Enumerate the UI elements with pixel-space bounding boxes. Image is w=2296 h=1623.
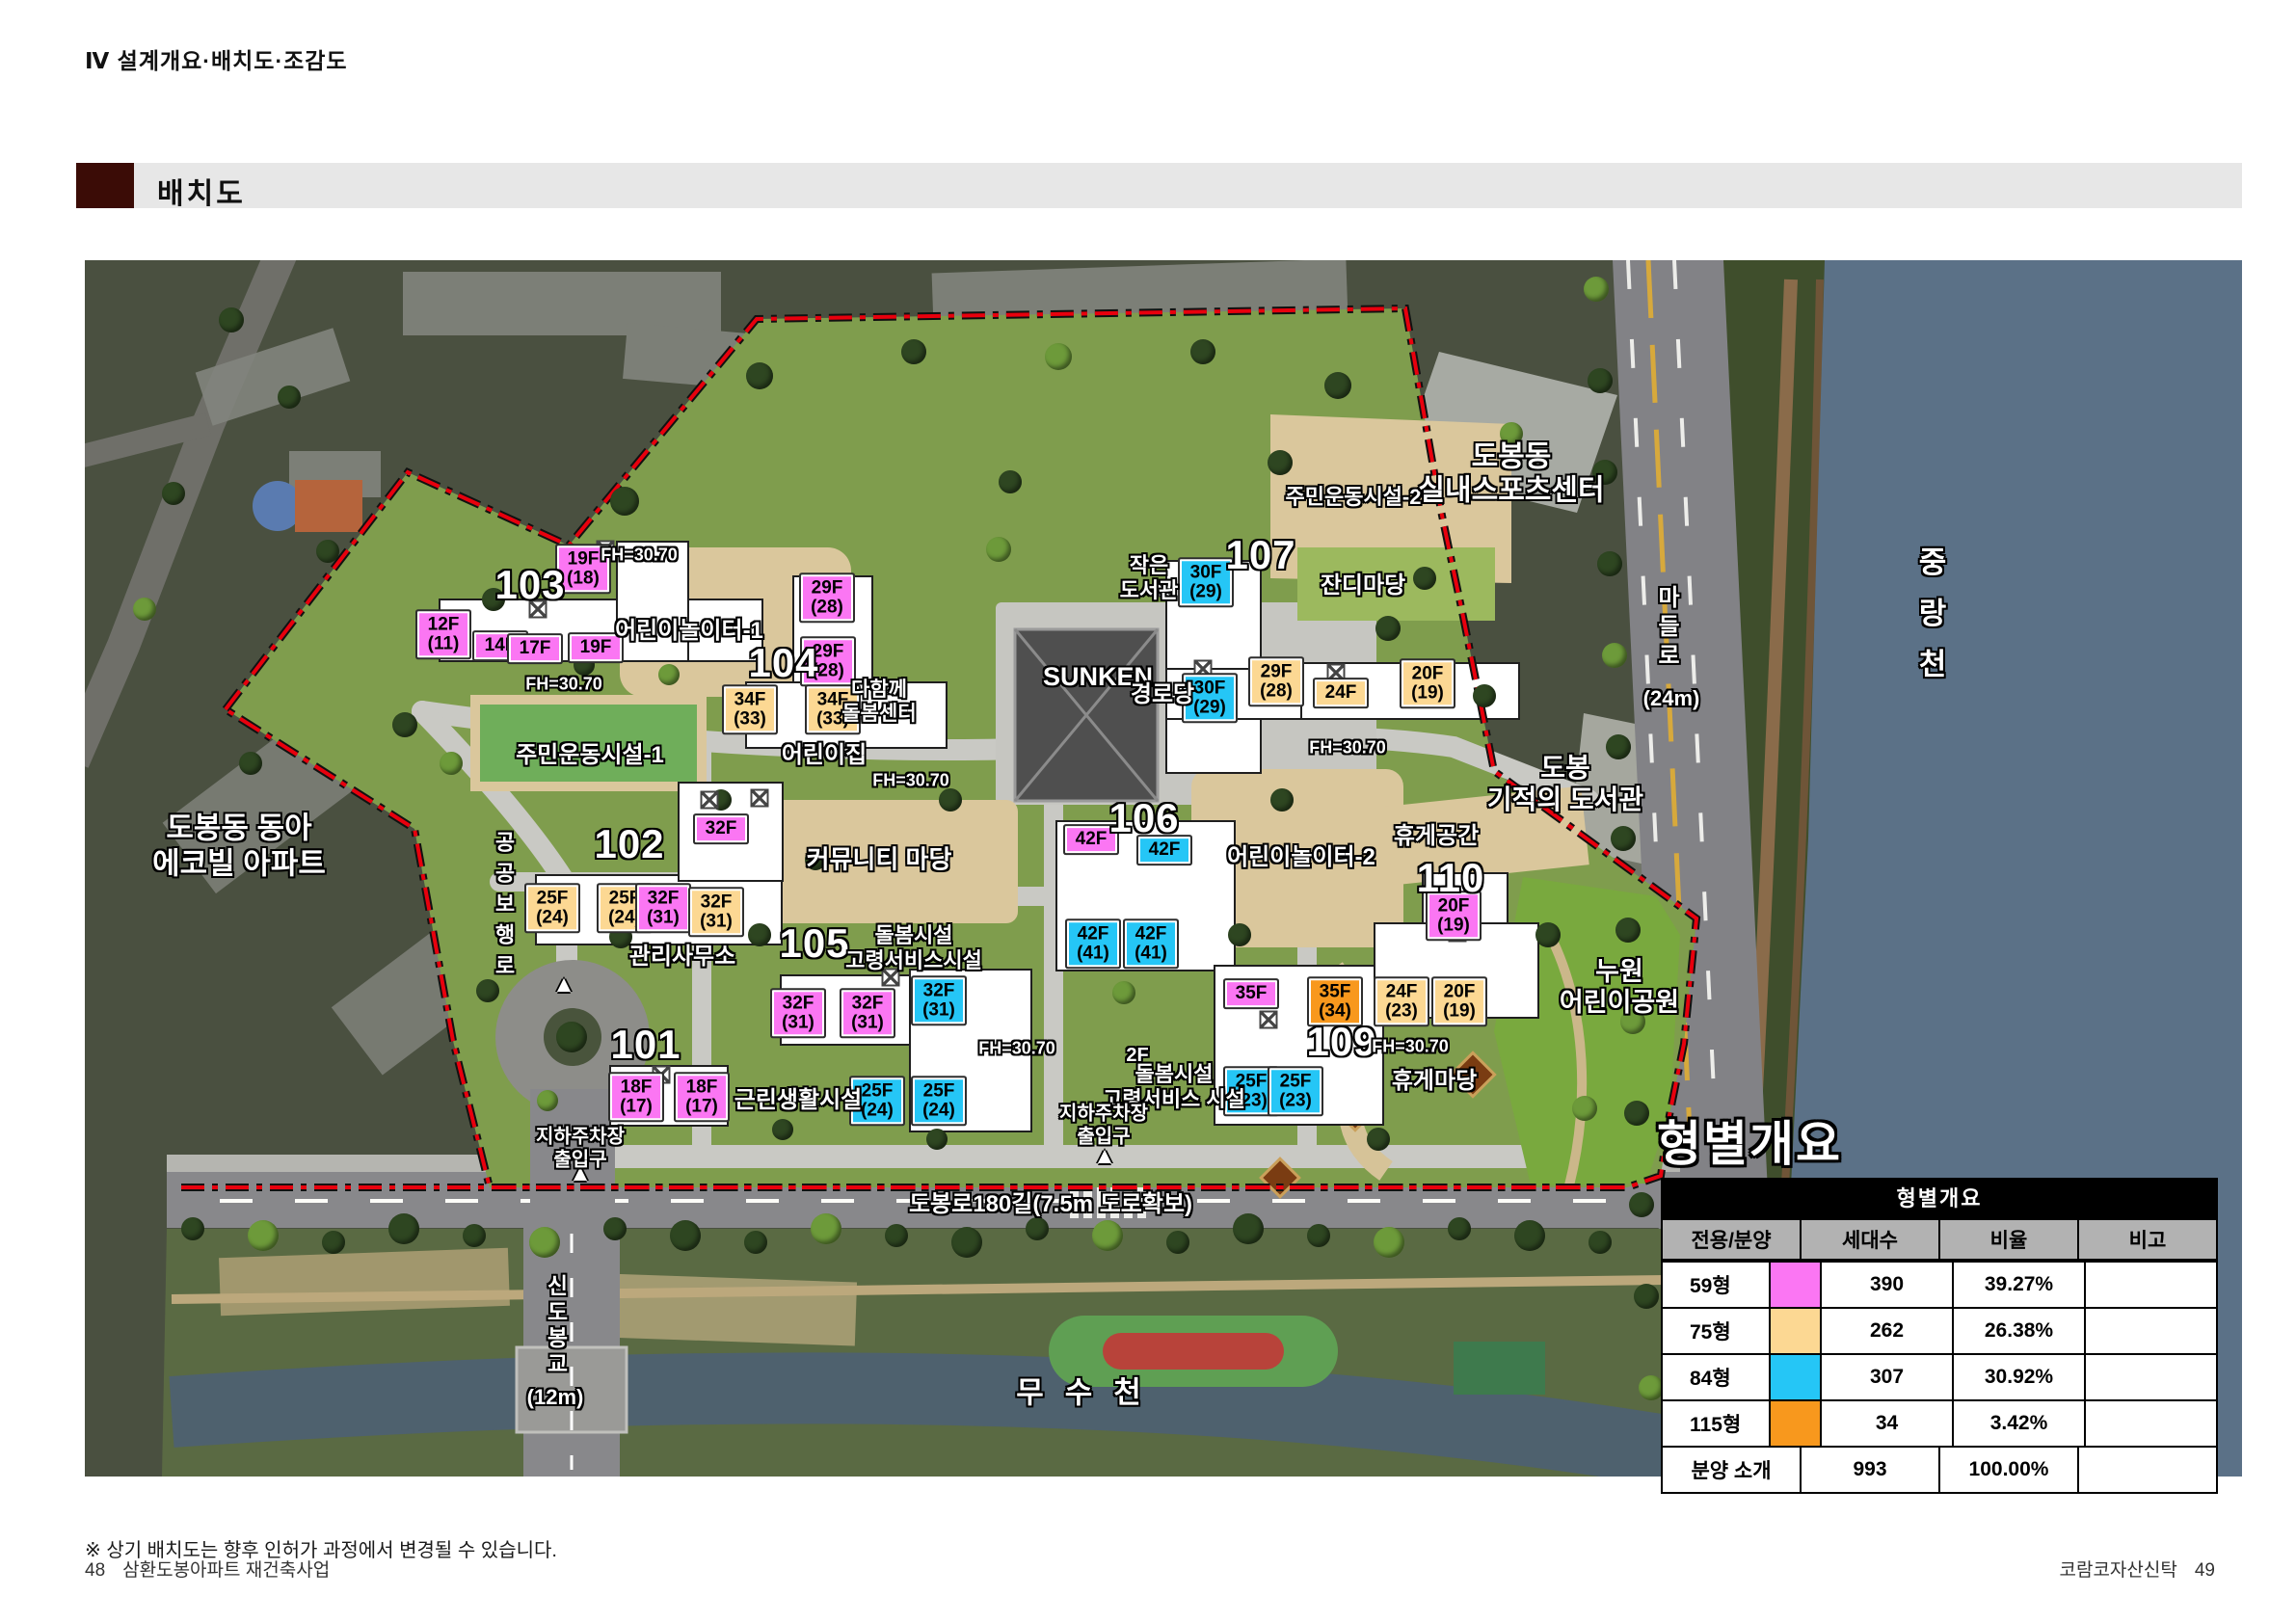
legend-color-swatch (1769, 1261, 1822, 1309)
legend-column-header: 세대수 (1800, 1218, 1940, 1261)
legend-ratio-cell: 39.27% (1952, 1261, 2086, 1309)
legend-note-cell (2084, 1353, 2218, 1401)
legend-type-cell: 115형 (1661, 1399, 1822, 1448)
title-bar (134, 163, 2242, 208)
page-number-left: 48 (85, 1560, 105, 1581)
page-title: 배치도 (157, 170, 246, 212)
legend-column-header: 비고 (2077, 1218, 2218, 1261)
legend-color-swatch (1769, 1353, 1822, 1401)
footer-right: 코람코자산신탁49 (2059, 1556, 2215, 1582)
south-road-bridge (517, 1224, 627, 1477)
legend-note-cell (2077, 1446, 2218, 1494)
legend-row: 분양 소개993100.00% (1661, 1448, 2218, 1494)
legend-type-cell: 75형 (1661, 1307, 1822, 1355)
legend-households-cell: 307 (1820, 1353, 1954, 1401)
legend-ratio-cell: 26.38% (1952, 1307, 2086, 1355)
legend-row: 84형30730.92% (1661, 1355, 2218, 1401)
page-section-header: Ⅳ 설계개요·배치도·조감도 (85, 42, 348, 75)
title-accent-block (76, 163, 134, 208)
page-number-right: 49 (2195, 1560, 2215, 1581)
legend-type-cell: 59형 (1661, 1261, 1822, 1309)
legend-column-header: 비율 (1938, 1218, 2079, 1261)
legend-note-cell (2084, 1307, 2218, 1355)
legend-note-cell (2084, 1399, 2218, 1448)
legend-households-cell: 390 (1820, 1261, 1954, 1309)
legend-overlay-heading: 형별개요 (1657, 1105, 1842, 1175)
legend-households-cell: 262 (1820, 1307, 1954, 1355)
legend-households-cell: 993 (1800, 1446, 1940, 1494)
legend-table: 형별개요 전용/분양세대수비율비고 59형39039.27%75형26226.3… (1661, 1178, 2218, 1494)
legend-row: 115형343.42% (1661, 1401, 2218, 1448)
legend-header-row: 전용/분양세대수비율비고 (1661, 1220, 2218, 1261)
footer-left: 48삼환도봉아파트 재건축사업 (85, 1556, 330, 1582)
musu-stream-park (162, 1229, 1791, 1477)
company-name: 코람코자산신탁 (2059, 1560, 2176, 1581)
legend-row: 75형26226.38% (1661, 1309, 2218, 1355)
legend-ratio-cell: 30.92% (1952, 1353, 2086, 1401)
legend-column-header: 전용/분양 (1661, 1218, 1802, 1261)
legend-note-cell (2084, 1261, 2218, 1309)
legend-color-swatch (1769, 1307, 1822, 1355)
legend-row: 59형39039.27% (1661, 1261, 2218, 1309)
legend-body: 59형39039.27%75형26226.38%84형30730.92%115형… (1661, 1261, 2218, 1494)
legend-color-swatch (1769, 1399, 1822, 1448)
project-name: 삼환도봉아파트 재건축사업 (122, 1560, 330, 1581)
legend-type-cell: 84형 (1661, 1353, 1822, 1401)
legend-households-cell: 34 (1820, 1399, 1954, 1448)
legend-type-cell: 분양 소개 (1661, 1446, 1802, 1494)
page: { "page": { "section_header": "Ⅳ 설계개요·배치… (0, 0, 2296, 1623)
legend-ratio-cell: 3.42% (1952, 1399, 2086, 1448)
legend-title: 형별개요 (1661, 1178, 2218, 1220)
legend-ratio-cell: 100.00% (1938, 1446, 2079, 1494)
